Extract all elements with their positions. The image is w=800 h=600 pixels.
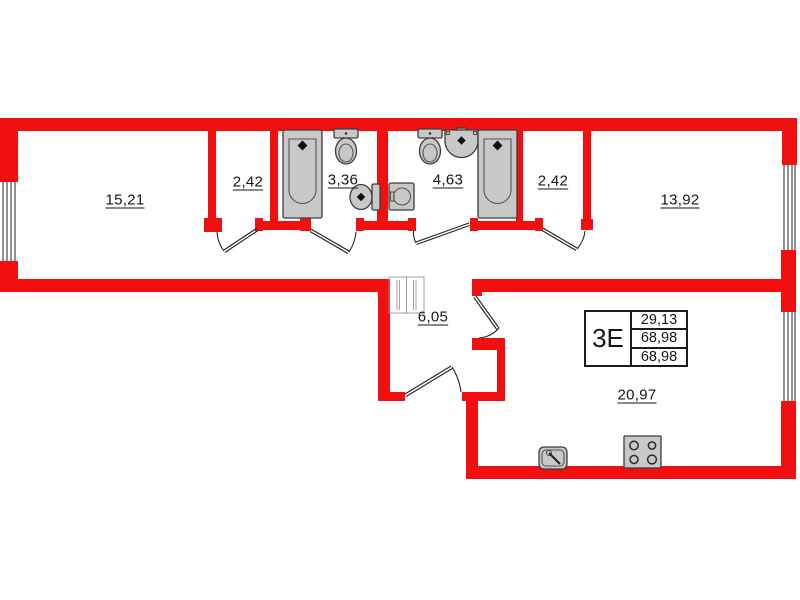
room-area-label-room-right: 13,92 xyxy=(660,192,699,209)
wall-segment xyxy=(408,218,416,231)
wall-segment xyxy=(356,221,416,230)
floor-plan-drawing xyxy=(0,0,800,600)
entrance-door-swing xyxy=(405,366,452,397)
window-right-bottom xyxy=(782,312,796,401)
door-swings xyxy=(217,223,585,397)
door-swing xyxy=(310,229,349,254)
unit-area-rows: 29,13 68,98 68,98 xyxy=(632,312,686,365)
door-swing xyxy=(474,296,499,330)
wall-segment xyxy=(782,118,797,165)
room-area-label-closet-right: 2,42 xyxy=(538,173,568,190)
wall-segment xyxy=(378,280,390,401)
walls xyxy=(0,118,797,479)
unit-area-value: 68,98 xyxy=(632,349,686,365)
wall-segment xyxy=(204,218,222,232)
door-arc xyxy=(217,232,224,251)
wall-segment xyxy=(208,128,216,230)
floor-plan: 15,21 2,42 3,36 4,63 2,42 13,92 6,05 20,… xyxy=(0,0,800,600)
door-swing xyxy=(224,228,258,253)
wall-segment xyxy=(472,338,505,350)
washing-machine-icon xyxy=(389,183,414,210)
room-area-label-bathroom-large: 4,63 xyxy=(433,172,463,189)
room-area-label-hallway: 6,05 xyxy=(418,309,448,326)
wall-segment xyxy=(472,279,482,296)
room-area-label-closet-left: 2,42 xyxy=(233,174,263,191)
window-right-top xyxy=(782,165,796,250)
unit-info-table: 3Е 29,13 68,98 68,98 xyxy=(584,310,688,367)
wall-segment xyxy=(535,218,543,231)
room-area-label-kitchen-living: 20,97 xyxy=(617,387,656,404)
door-swing xyxy=(542,228,577,251)
wall-segment xyxy=(581,219,593,230)
kitchen-sink-icon xyxy=(539,447,567,469)
entrance-door-arc xyxy=(452,367,461,392)
bathtub-icon xyxy=(283,130,322,218)
sink-icon xyxy=(445,128,478,158)
window-left xyxy=(1,182,16,261)
wall-segment xyxy=(781,250,796,312)
wall-segment xyxy=(270,128,278,225)
wall-segment xyxy=(2,118,796,131)
door-swing xyxy=(416,223,470,245)
wall-segment xyxy=(0,279,390,292)
bathtub-icon xyxy=(478,130,517,218)
unit-type-label: 3Е xyxy=(586,312,632,365)
wall-segment xyxy=(583,128,591,228)
door-arc xyxy=(413,231,416,243)
room-area-label-room-left: 15,21 xyxy=(105,192,144,209)
door-arc xyxy=(577,231,585,249)
wall-segment xyxy=(466,397,478,469)
wall-segment xyxy=(472,279,781,292)
toilet-icon xyxy=(334,129,358,164)
stove-icon xyxy=(624,436,661,468)
wall-segment xyxy=(0,118,18,182)
unit-total-area: 29,13 xyxy=(632,312,686,330)
unit-area-value: 68,98 xyxy=(632,330,686,348)
door-arc xyxy=(349,232,356,252)
toilet-icon xyxy=(418,129,442,164)
room-area-label-bathroom-small: 3,36 xyxy=(328,172,358,189)
wall-segment xyxy=(470,221,543,230)
wall-segment xyxy=(378,392,405,401)
wall-segment xyxy=(300,218,311,231)
door-arc xyxy=(479,328,499,338)
